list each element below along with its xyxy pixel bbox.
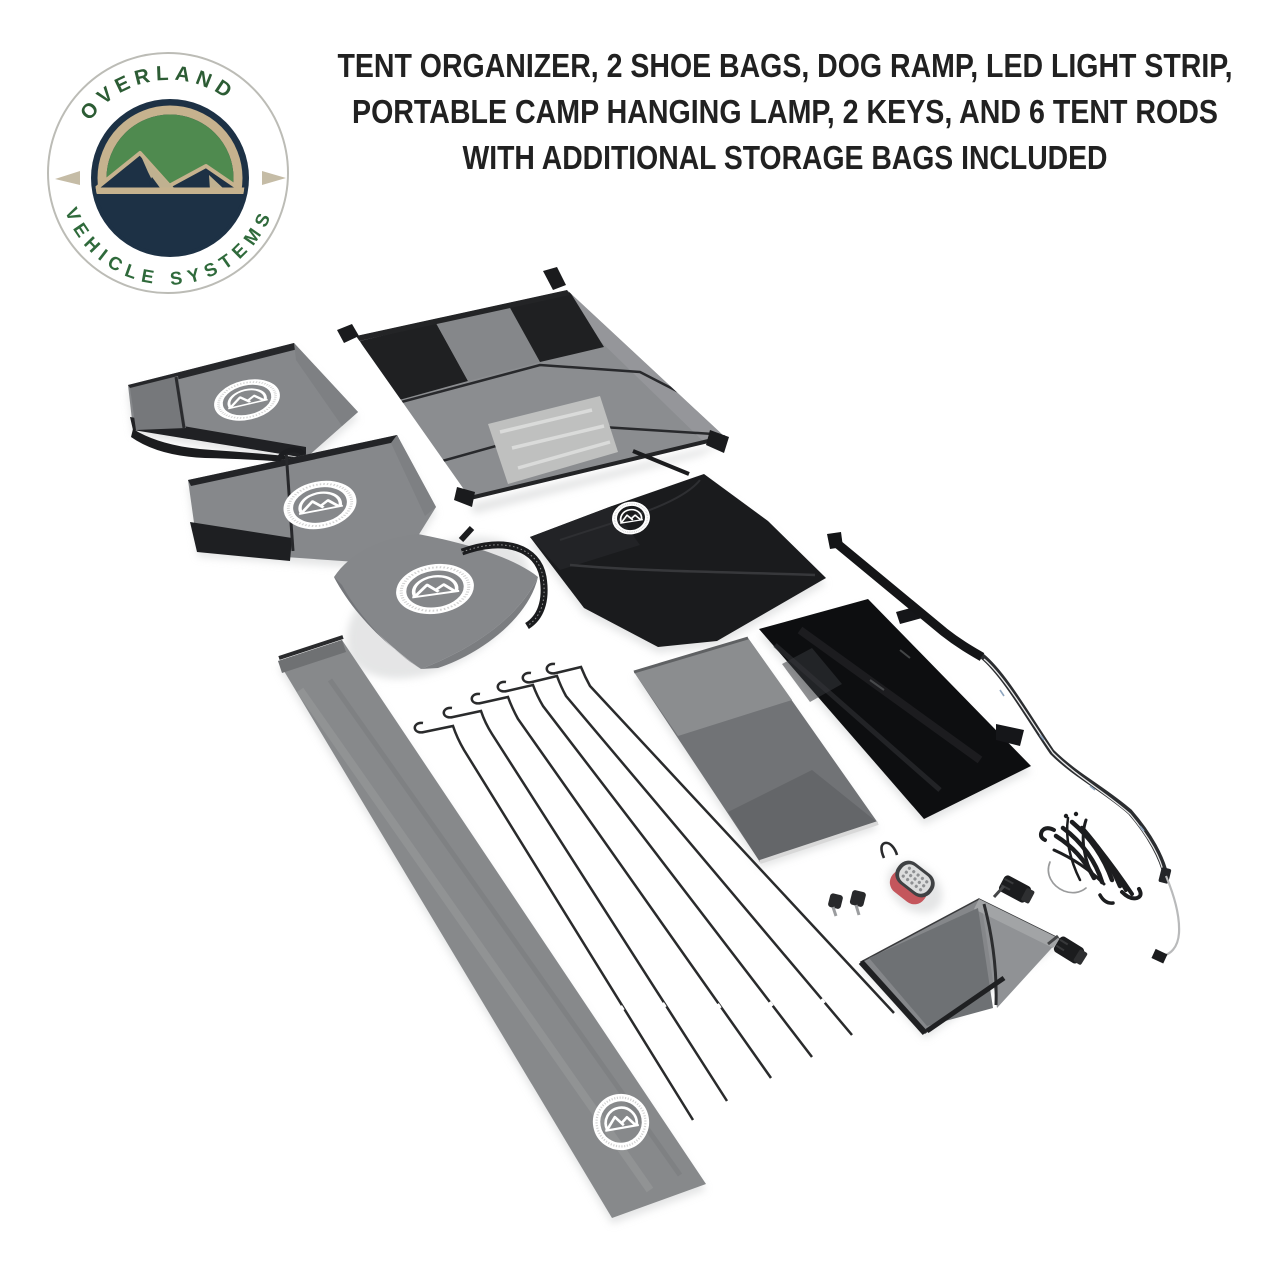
svg-text:TENT ORGANIZER, 2 SHOE BAGS, D: TENT ORGANIZER, 2 SHOE BAGS, DOG RAMP, L…	[338, 47, 1233, 84]
svg-text:WITH ADDITIONAL STORAGE BAGS I: WITH ADDITIONAL STORAGE BAGS INCLUDED	[463, 139, 1108, 176]
svg-text:PORTABLE CAMP HANGING LAMP, 2: PORTABLE CAMP HANGING LAMP, 2 KEYS, AND …	[352, 93, 1218, 130]
